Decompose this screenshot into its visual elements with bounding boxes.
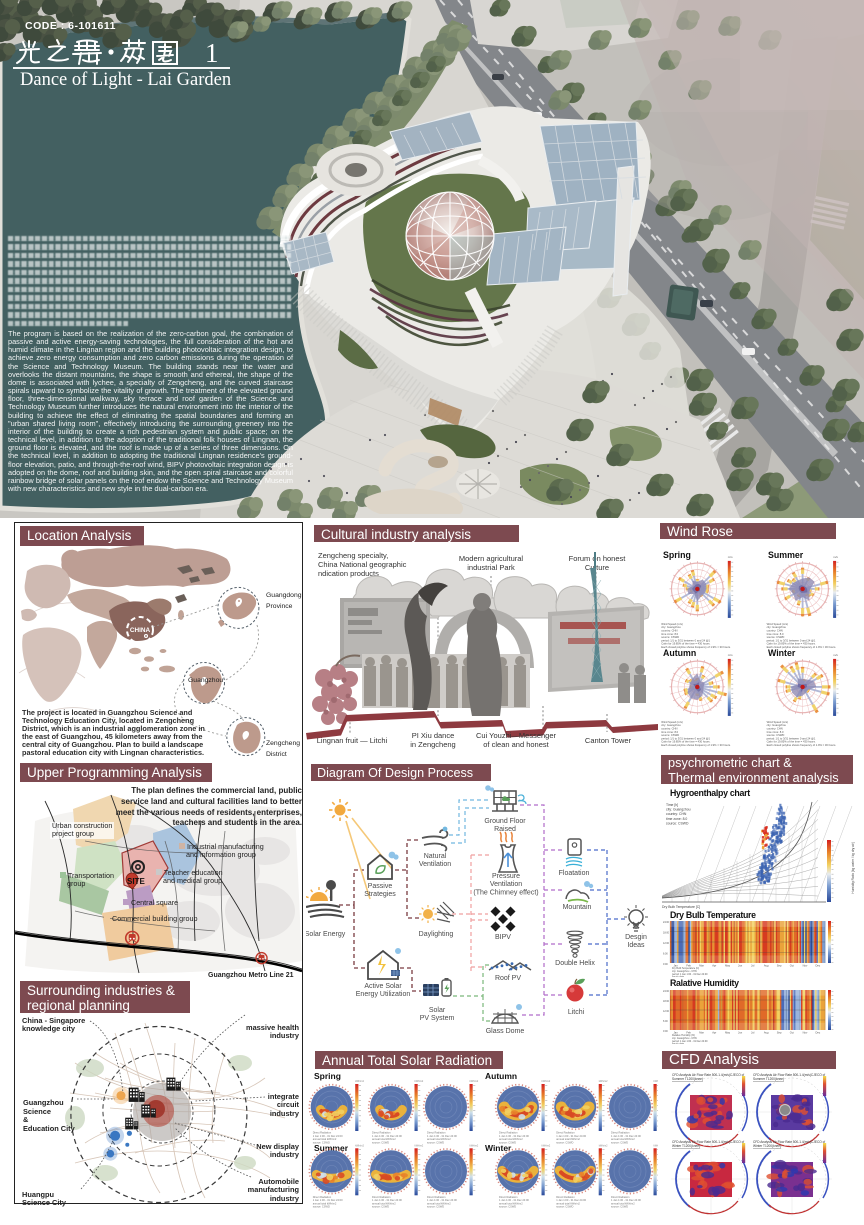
svg-text:Mar: Mar [699, 964, 704, 968]
svg-text:kWh/m2: kWh/m2 [415, 1080, 424, 1083]
svg-text:source: CSWD: source: CSWD [372, 1140, 389, 1144]
svg-text:Each closed polyline shows fre: Each closed polyline shows frequency of … [661, 743, 731, 747]
svg-text:source: CSWD: source: CSWD [313, 1140, 330, 1144]
svg-text:source: CSWD: source: CSWD [666, 821, 689, 825]
svg-text:Summer T1200(knee): Summer T1200(knee) [753, 1077, 784, 1081]
svg-text:18:00: 18:00 [663, 1000, 670, 1003]
svg-text:source: CSWD: source: CSWD [499, 1140, 516, 1144]
svg-text:Active Solar: Active Solar [364, 983, 402, 990]
svg-text:Natural: Natural [424, 853, 447, 860]
svg-text:1: 1 [205, 38, 219, 68]
svg-text:18:00: 18:00 [663, 932, 670, 935]
svg-text:source: CSWD: source: CSWD [556, 1205, 573, 1209]
svg-text:PV System: PV System [420, 1015, 455, 1022]
svg-text:Aug: Aug [764, 1031, 769, 1035]
svg-text:source: CSWD: source: CSWD [556, 1140, 573, 1144]
svg-text:(The Chimney effect): (The Chimney effect) [473, 889, 538, 896]
svg-text:Ideas: Ideas [627, 942, 645, 949]
svg-text:kWh/m2: kWh/m2 [542, 1080, 551, 1083]
svg-text:Aug: Aug [764, 964, 769, 968]
svg-text:Roof PV: Roof PV [495, 975, 521, 982]
svg-text:Solar Energy: Solar Energy [306, 931, 346, 938]
svg-text:kWh/m2: kWh/m2 [542, 1144, 551, 1147]
svg-text:Double Helix: Double Helix [555, 960, 595, 967]
svg-text:source: CSWD: source: CSWD [611, 1205, 628, 1209]
svg-text:time zone: 8.0: time zone: 8.0 [666, 817, 687, 821]
svg-text:Winter T1200(knee): Winter T1200(knee) [672, 1144, 700, 1148]
svg-text:Jul: Jul [751, 1031, 755, 1035]
svg-text:city: Guangzhou: city: Guangzhou [666, 808, 691, 812]
svg-text:Each closed polyline shows fre: Each closed polyline shows frequency of … [661, 645, 731, 649]
svg-text:Oct: Oct [790, 964, 794, 968]
svg-text:Ventilation: Ventilation [419, 861, 451, 868]
svg-text:kWh/m2: kWh/m2 [599, 1080, 608, 1083]
svg-text:kWh/m2: kWh/m2 [355, 1080, 364, 1083]
svg-text:Passive: Passive [368, 883, 393, 890]
svg-text:Apr: Apr [712, 1031, 716, 1035]
svg-text:source: CSWD: source: CSWD [499, 1205, 516, 1209]
svg-text:May: May [725, 964, 731, 968]
svg-text:Nov: Nov [803, 964, 808, 968]
svg-text:Jun: Jun [738, 964, 743, 968]
svg-text:0:00: 0:00 [663, 1030, 668, 1033]
svg-text:Ventilation: Ventilation [490, 881, 522, 888]
svg-text:0:00: 0:00 [663, 963, 668, 966]
svg-text:source: CSWD: source: CSWD [372, 1205, 389, 1209]
svg-text:Dec: Dec [816, 1031, 821, 1035]
svg-text:kWh/m2: kWh/m2 [470, 1144, 479, 1147]
svg-text:12:00: 12:00 [663, 942, 670, 945]
svg-text:source: CSWD: source: CSWD [427, 1205, 444, 1209]
svg-text:m/s: m/s [728, 653, 733, 657]
svg-text:12:00: 12:00 [663, 1010, 670, 1013]
svg-text:kWh/m2: kWh/m2 [415, 1144, 424, 1147]
svg-text:6:00: 6:00 [663, 1020, 668, 1023]
svg-text:Litchi: Litchi [568, 1009, 585, 1016]
svg-text:Each closed polyline shows fre: Each closed polyline shows frequency of … [767, 645, 837, 649]
svg-text:Ground Floor: Ground Floor [484, 818, 526, 825]
svg-text:Winter T1200(knee): Winter T1200(knee) [753, 1144, 781, 1148]
svg-text:Mar: Mar [699, 1031, 704, 1035]
svg-text:source: CSWD: source: CSWD [611, 1140, 628, 1144]
svg-text:hourly data: hourly data [672, 976, 684, 977]
svg-text:hourly data: hourly data [672, 1043, 684, 1044]
svg-text:Glass Dome: Glass Dome [486, 1028, 525, 1035]
svg-text:Sep: Sep [777, 1031, 782, 1035]
svg-text:Sep: Sep [777, 964, 782, 968]
svg-text:Summer T1200(knee): Summer T1200(knee) [672, 1077, 703, 1081]
svg-text:Mountain: Mountain [563, 904, 592, 911]
svg-text:Jun: Jun [738, 1031, 743, 1035]
svg-text:Desgin: Desgin [625, 934, 647, 941]
svg-text:source: CSWD: source: CSWD [313, 1205, 330, 1209]
svg-text:CHINA: CHINA [130, 627, 151, 634]
svg-text:Solar: Solar [429, 1007, 446, 1014]
svg-text:m/s: m/s [833, 555, 838, 559]
svg-text:m/s: m/s [728, 555, 733, 559]
svg-text:Daylighting: Daylighting [419, 931, 454, 938]
svg-text:Apr: Apr [712, 964, 716, 968]
svg-text:6:00: 6:00 [663, 953, 668, 956]
svg-text:kWh/m2: kWh/m2 [355, 1144, 364, 1147]
svg-text:Time [h]: Time [h] [666, 803, 678, 807]
svg-text:Each closed polyline shows fre: Each closed polyline shows frequency of … [767, 743, 837, 747]
svg-text:Strategies: Strategies [364, 891, 396, 898]
svg-text:source: CSWD: source: CSWD [427, 1140, 444, 1144]
svg-text:Dec: Dec [816, 964, 821, 968]
svg-text:Oct: Oct [790, 1031, 794, 1035]
svg-text:Humidity Ratio [kg water / kg: Humidity Ratio [kg water / kg dry air] [851, 842, 855, 893]
svg-text:BIPV: BIPV [495, 934, 511, 941]
svg-text:Floatation: Floatation [559, 870, 590, 877]
svg-text:Dry Bulb Temperature [C]: Dry Bulb Temperature [C] [662, 905, 700, 909]
svg-text:country: CHN: country: CHN [666, 812, 687, 816]
svg-text:Energy Utilization: Energy Utilization [356, 991, 411, 998]
svg-text:24:00: 24:00 [663, 990, 670, 993]
svg-text:m/s: m/s [833, 653, 838, 657]
svg-text:Jul: Jul [751, 964, 755, 968]
svg-text:24:00: 24:00 [663, 921, 670, 924]
svg-text:May: May [725, 1031, 731, 1035]
svg-text:Nov: Nov [803, 1031, 808, 1035]
svg-text:kWh/m2: kWh/m2 [470, 1080, 479, 1083]
svg-text:kWh/m2: kWh/m2 [599, 1144, 608, 1147]
svg-text:Pressure: Pressure [492, 873, 520, 880]
